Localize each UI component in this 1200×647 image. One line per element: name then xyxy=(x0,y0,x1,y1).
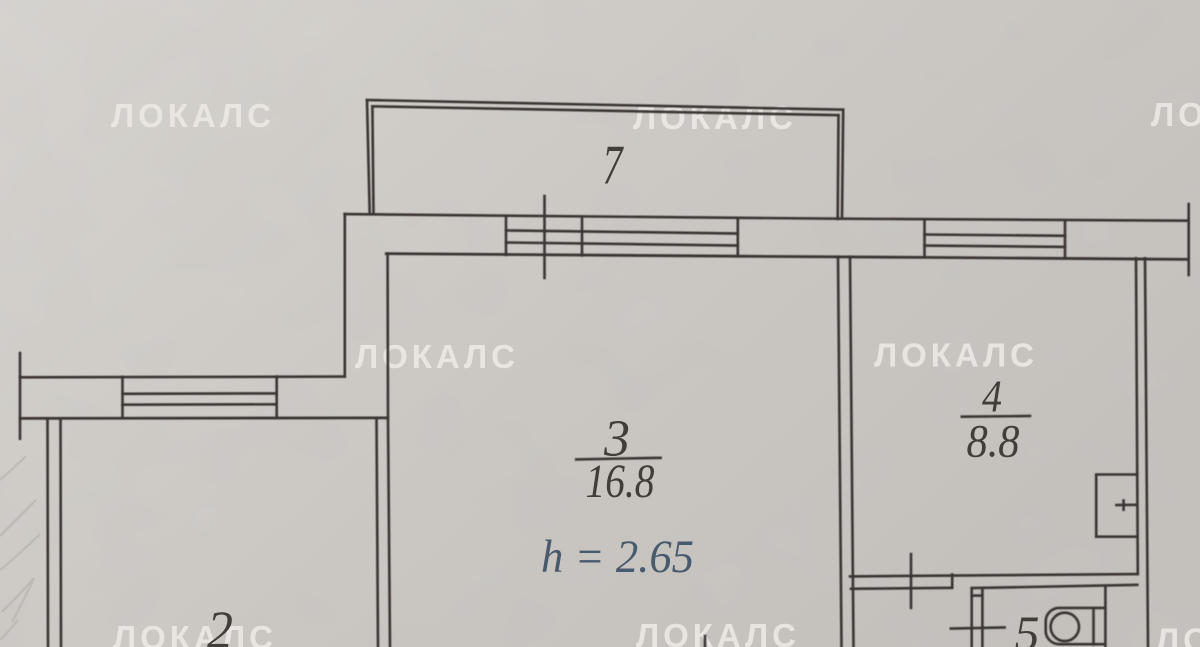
svg-text:16.8: 16.8 xyxy=(586,455,655,508)
svg-text:5: 5 xyxy=(1015,605,1040,647)
svg-text:8.8: 8.8 xyxy=(967,416,1020,468)
svg-text:h = 2.65: h = 2.65 xyxy=(541,531,694,583)
svg-text:7: 7 xyxy=(603,135,624,197)
svg-text:ЛОКАЛС: ЛОКАЛС xyxy=(1156,622,1200,647)
svg-text:2: 2 xyxy=(207,600,233,647)
svg-text:4: 4 xyxy=(982,371,1002,422)
